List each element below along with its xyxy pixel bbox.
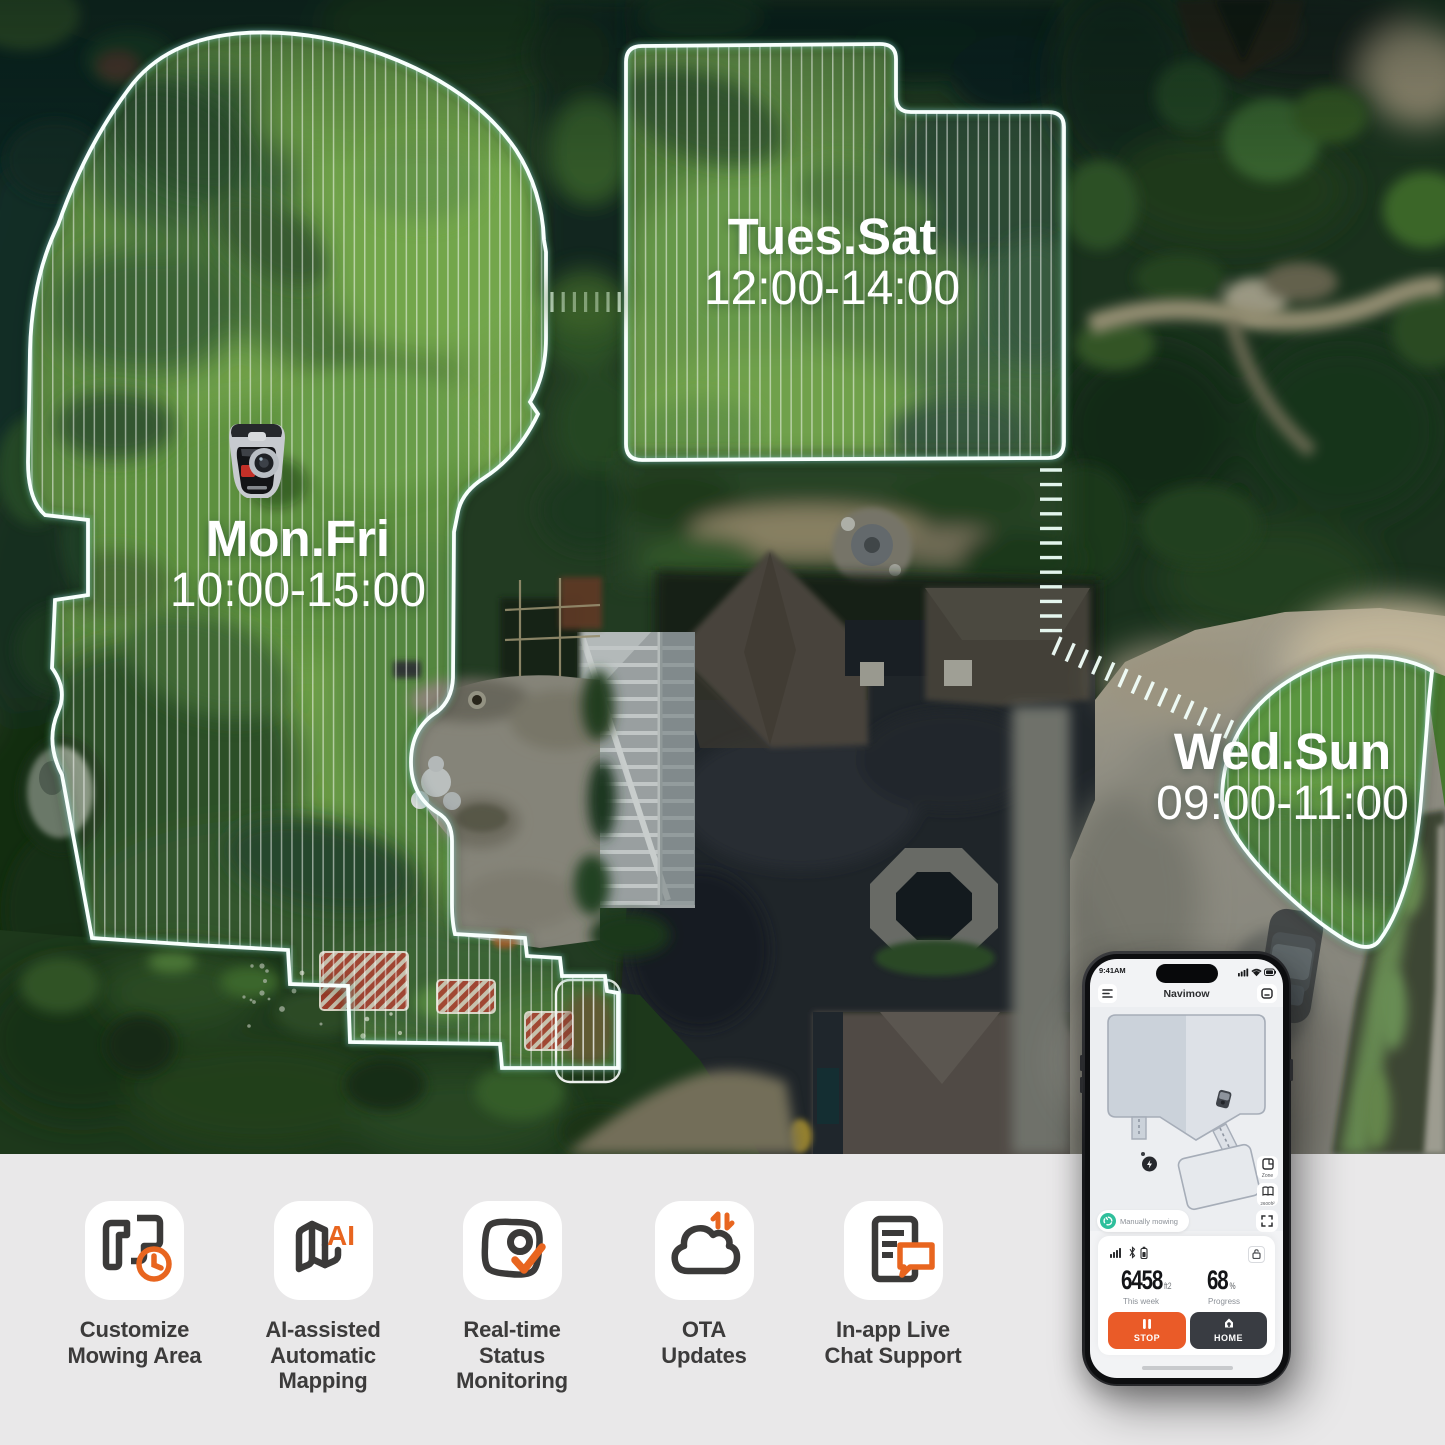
svg-text:AI: AI — [327, 1220, 355, 1251]
